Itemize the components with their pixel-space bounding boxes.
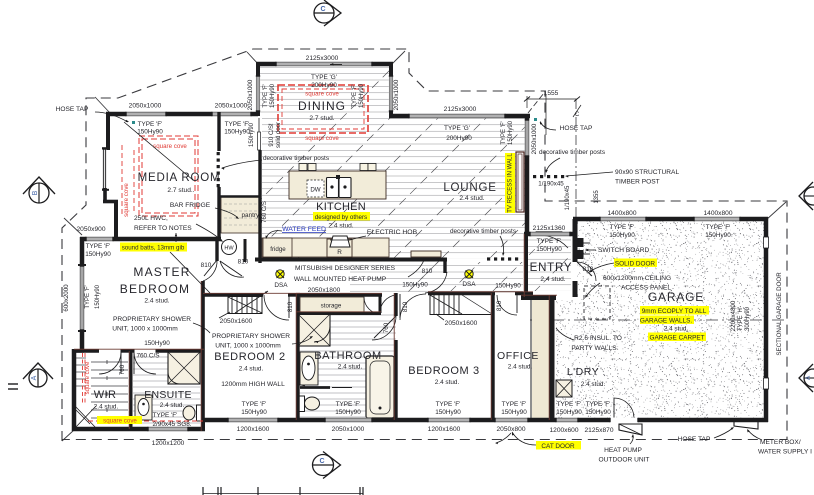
- svg-text:90x90 STRUCTURAL: 90x90 STRUCTURAL: [615, 169, 679, 176]
- svg-text:BEDROOM 3: BEDROOM 3: [408, 365, 479, 377]
- svg-text:A: A: [805, 375, 812, 380]
- svg-text:DW: DW: [310, 187, 320, 194]
- svg-text:TV RECESS IN WALL: TV RECESS IN WALL: [508, 153, 514, 213]
- svg-text:HOSE TAP: HOSE TAP: [560, 125, 593, 132]
- svg-text:150Hy90: 150Hy90: [335, 409, 361, 416]
- svg-text:PROPRIETARY SHOWER: PROPRIETARY SHOWER: [113, 316, 191, 323]
- svg-text:600x1200mm CEILING: 600x1200mm CEILING: [603, 275, 671, 282]
- svg-text:2050x1000: 2050x1000: [332, 426, 365, 433]
- svg-text:150Hy90: 150Hy90: [85, 251, 111, 258]
- svg-text:2050x1000: 2050x1000: [215, 103, 248, 110]
- svg-text:TYPE 'F': TYPE 'F': [153, 412, 178, 419]
- svg-text:2.4 stud.: 2.4 stud.: [540, 276, 565, 283]
- svg-text:decorative timber posts: decorative timber posts: [539, 149, 605, 156]
- svg-text:150Hy90: 150Hy90: [95, 284, 101, 309]
- svg-text:2.4 stud.: 2.4 stud.: [581, 381, 606, 388]
- svg-text:2050x1000: 2050x1000: [129, 103, 162, 110]
- svg-text:TYPE 'F': TYPE 'F': [501, 121, 507, 144]
- svg-text:designed by others: designed by others: [315, 214, 367, 221]
- svg-text:760: 760: [383, 322, 390, 333]
- svg-text:TYPE 'F': TYPE 'F': [586, 401, 611, 408]
- svg-text:810: 810: [287, 301, 294, 312]
- svg-text:TYPE 'F': TYPE 'F': [610, 224, 635, 231]
- svg-text:TYPE 'F': TYPE 'F': [225, 121, 250, 128]
- svg-text:2.4 stud.: 2.4 stud.: [435, 379, 460, 386]
- svg-text:150Hy90: 150Hy90: [705, 232, 731, 239]
- svg-text:PROPRIETARY SHOWER: PROPRIETARY SHOWER: [212, 333, 290, 340]
- svg-text:TYPE 'F': TYPE 'F': [336, 401, 361, 408]
- svg-text:A: A: [31, 375, 38, 380]
- svg-text:1400x800: 1400x800: [608, 210, 637, 217]
- svg-text:1355: 1355: [594, 190, 600, 204]
- svg-text:TYPE 'G': TYPE 'G': [444, 125, 470, 132]
- svg-text:TYPE 'H': TYPE 'H': [738, 307, 744, 331]
- svg-text:150Hy90: 150Hy90: [585, 409, 611, 416]
- svg-text:2050x1000: 2050x1000: [531, 123, 538, 154]
- svg-text:810: 810: [422, 268, 433, 275]
- svg-text:2.4 stud.: 2.4 stud.: [459, 195, 484, 202]
- svg-text:250L HWC,: 250L HWC,: [134, 215, 168, 222]
- svg-text:B: B: [32, 190, 39, 195]
- svg-text:WATER SUPPLY I: WATER SUPPLY I: [758, 449, 812, 456]
- svg-text:2125x1360: 2125x1360: [533, 225, 566, 232]
- svg-text:TYPE 'F': TYPE 'F': [352, 84, 358, 107]
- svg-text:810: 810: [402, 301, 409, 312]
- svg-text:OFFICE: OFFICE: [497, 350, 539, 362]
- svg-text:150Hy90: 150Hy90: [495, 283, 521, 290]
- svg-text:1/190x45: 1/190x45: [565, 185, 571, 210]
- svg-text:TYPE 'F': TYPE 'F': [86, 243, 111, 250]
- svg-text:150Hy90: 150Hy90: [536, 246, 562, 253]
- svg-text:solid door: solid door: [276, 122, 282, 148]
- svg-text:CAT DOOR: CAT DOOR: [541, 443, 575, 450]
- svg-text:UNIT, 1000 x 1000mm: UNIT, 1000 x 1000mm: [112, 326, 178, 333]
- svg-text:2.4 stud.: 2.4 stud.: [94, 404, 119, 411]
- svg-text:KITCHEN: KITCHEN: [316, 201, 366, 213]
- svg-text:2050x1800: 2050x1800: [308, 287, 341, 294]
- svg-text:square cove: square cove: [85, 361, 91, 394]
- svg-text:2050x1600: 2050x1600: [220, 318, 253, 325]
- svg-text:GARAGE CARPET: GARAGE CARPET: [649, 334, 704, 341]
- svg-text:2125x3000: 2125x3000: [306, 55, 339, 62]
- svg-text:1200mm HIGH WALL: 1200mm HIGH WALL: [221, 381, 285, 388]
- svg-text:SECTIONAL GARAGE DOOR: SECTIONAL GARAGE DOOR: [776, 272, 783, 356]
- svg-text:2.4 stud.: 2.4 stud.: [144, 298, 169, 305]
- svg-text:1200x600: 1200x600: [550, 427, 579, 434]
- svg-text:TYPE 'G': TYPE 'G': [311, 74, 337, 81]
- svg-text:R: R: [337, 249, 342, 256]
- svg-text:DSA: DSA: [462, 281, 476, 288]
- svg-text:C: C: [320, 6, 325, 13]
- svg-text:decorative timber posts: decorative timber posts: [450, 228, 516, 235]
- svg-text:WATER FEED: WATER FEED: [282, 226, 326, 233]
- svg-text:square cove: square cove: [305, 91, 339, 98]
- svg-text:910 C/S!: 910 C/S!: [269, 123, 275, 147]
- svg-text:TYPE 'F': TYPE 'F': [242, 401, 267, 408]
- svg-text:2125x870: 2125x870: [585, 427, 614, 434]
- svg-text:LOUNGE: LOUNGE: [443, 182, 496, 194]
- svg-text:L'DRY: L'DRY: [567, 366, 599, 378]
- svg-text:2.7 stud.: 2.7 stud.: [309, 115, 334, 122]
- svg-text:2.4 stud.: 2.4 stud.: [239, 366, 264, 373]
- svg-text:PARTY WALLS: PARTY WALLS: [571, 345, 617, 352]
- svg-text:1200x1600: 1200x1600: [237, 426, 270, 433]
- svg-text:1/190x45: 1/190x45: [538, 181, 564, 188]
- svg-text:SWITCH BOARD: SWITCH BOARD: [598, 247, 650, 254]
- svg-text:HW: HW: [224, 246, 234, 252]
- svg-text:150Hy90: 150Hy90: [144, 340, 170, 347]
- svg-text:2050x1000: 2050x1000: [393, 79, 400, 110]
- svg-text:2200x4800: 2200x4800: [730, 300, 737, 331]
- svg-text:GARAGE WALLS.: GARAGE WALLS.: [640, 317, 693, 324]
- svg-text:C: C: [319, 458, 324, 465]
- svg-text:2125x3000: 2125x3000: [444, 106, 477, 113]
- svg-text:square cove: square cove: [153, 143, 187, 150]
- svg-text:fridge: fridge: [270, 246, 286, 253]
- svg-text:150Hy90: 150Hy90: [508, 120, 514, 145]
- svg-text:HOSE TAP: HOSE TAP: [678, 436, 711, 443]
- svg-text:150Hy90: 150Hy90: [359, 83, 365, 108]
- svg-text:MEDIA ROOM: MEDIA ROOM: [138, 172, 221, 184]
- svg-text:1200x1200: 1200x1200: [152, 440, 185, 447]
- svg-text:2.4 stud.: 2.4 stud.: [338, 364, 363, 371]
- svg-text:OUTDOOR UNIT: OUTDOOR UNIT: [599, 457, 650, 464]
- svg-text:ENTRY: ENTRY: [530, 262, 573, 274]
- svg-text:R2.6 INSUL. TO: R2.6 INSUL. TO: [574, 335, 622, 342]
- svg-text:150Hy90: 150Hy90: [137, 129, 163, 136]
- svg-text:760: 760: [119, 364, 126, 375]
- svg-text:BEDROOM 2: BEDROOM 2: [214, 351, 285, 363]
- svg-text:150Hy90: 150Hy90: [609, 232, 635, 239]
- svg-text:760 C/S: 760 C/S: [262, 201, 268, 223]
- svg-text:ENSUITE: ENSUITE: [144, 389, 192, 401]
- svg-text:300Hy90: 300Hy90: [745, 306, 751, 331]
- svg-text:REFER TO NOTES: REFER TO NOTES: [134, 225, 192, 232]
- svg-text:TYPE 'F': TYPE 'F': [537, 238, 562, 245]
- svg-text:200Hy90: 200Hy90: [446, 135, 472, 142]
- svg-text:decorative timber posts: decorative timber posts: [263, 155, 329, 162]
- svg-text:TYPE 'F': TYPE 'F': [706, 224, 731, 231]
- svg-text:150Hy90: 150Hy90: [435, 409, 461, 416]
- svg-text:TYPE 'F': TYPE 'F': [502, 401, 527, 408]
- svg-text:810: 810: [238, 259, 249, 266]
- svg-text:MITSUBISHI DESIGNER SERIES: MITSUBISHI DESIGNER SERIES: [295, 265, 396, 272]
- svg-text:810: 810: [496, 300, 503, 311]
- svg-text:storage: storage: [321, 303, 342, 310]
- svg-text:600x2000: 600x2000: [63, 284, 70, 312]
- svg-text:TYPE 'F': TYPE 'F': [85, 285, 91, 308]
- svg-text:TYPE 'F': TYPE 'F': [557, 401, 582, 408]
- svg-text:BAR FRIDGE: BAR FRIDGE: [170, 202, 211, 209]
- svg-text:HOSE TAP: HOSE TAP: [56, 106, 89, 113]
- svg-text:METER BOX/: METER BOX/: [760, 439, 801, 446]
- svg-text:2.7 stud..: 2.7 stud..: [167, 187, 194, 194]
- svg-text:TIMBER POST: TIMBER POST: [615, 179, 660, 186]
- svg-text:150Hy90: 150Hy90: [241, 409, 267, 416]
- svg-text:2050x1000: 2050x1000: [247, 79, 254, 110]
- svg-text:150Hy90: 150Hy90: [402, 282, 428, 289]
- svg-text:150Hy90: 150Hy90: [556, 409, 582, 416]
- svg-text:TYPE 'F': TYPE 'F': [138, 121, 163, 128]
- svg-text:810: 810: [201, 262, 212, 269]
- svg-text:BATHROOM: BATHROOM: [314, 350, 382, 362]
- svg-text:pantry.: pantry.: [241, 212, 260, 219]
- svg-text:TYPE 'F': TYPE 'F': [436, 401, 461, 408]
- svg-text:2050x800: 2050x800: [497, 426, 526, 433]
- svg-text:2050x1600: 2050x1600: [445, 320, 478, 327]
- svg-text:150Hy90: 150Hy90: [249, 122, 255, 147]
- svg-text:9mm ECOPLY TO ALL: 9mm ECOPLY TO ALL: [642, 308, 707, 315]
- svg-text:1200x1600: 1200x1600: [428, 426, 461, 433]
- svg-text:150Hy90: 150Hy90: [270, 83, 276, 108]
- svg-text:810: 810: [583, 266, 594, 273]
- svg-text:BEDROOM: BEDROOM: [120, 282, 190, 296]
- svg-text:square cove: square cove: [123, 183, 130, 217]
- svg-text:200Hy90: 200Hy90: [311, 82, 337, 89]
- svg-text:WIR: WIR: [94, 389, 117, 401]
- svg-text:ACCESS PANEL: ACCESS PANEL: [621, 285, 671, 292]
- svg-text:2.4 stud.: 2.4 stud.: [664, 326, 689, 333]
- svg-text:2.4 stud.: 2.4 stud.: [160, 402, 185, 409]
- svg-text:760 C/S: 760 C/S: [136, 353, 159, 360]
- svg-text:UNIT, 1000 x 1000mm: UNIT, 1000 x 1000mm: [215, 343, 281, 350]
- svg-text:square cove: square cove: [305, 135, 339, 142]
- svg-text:TYPE 'F': TYPE 'F': [263, 84, 269, 107]
- svg-text:square cove: square cove: [103, 418, 137, 425]
- svg-text:150Hy90: 150Hy90: [501, 409, 527, 416]
- svg-text:1400x800: 1400x800: [704, 210, 733, 217]
- svg-text:MASTER: MASTER: [133, 265, 190, 279]
- svg-text:2050x900: 2050x900: [77, 226, 106, 233]
- svg-text:2.4 stud.: 2.4 stud.: [508, 364, 533, 371]
- svg-text:DINING: DINING: [298, 99, 346, 113]
- svg-text:2/90x45 SG8.: 2/90x45 SG8.: [152, 421, 191, 428]
- svg-text:WALL MOUNTED HEAT PUMP: WALL MOUNTED HEAT PUMP: [294, 276, 387, 283]
- svg-text:SOLID DOOR: SOLID DOOR: [615, 260, 656, 267]
- svg-text:HEAT PUMP: HEAT PUMP: [604, 447, 642, 454]
- svg-text:sound batts, 13mm gib: sound batts, 13mm gib: [122, 245, 185, 252]
- svg-text:150Hy90: 150Hy90: [224, 129, 250, 136]
- svg-text:DSA: DSA: [274, 282, 288, 289]
- svg-text:ELECTRIC HOB: ELECTRIC HOB: [367, 229, 418, 236]
- svg-text:2.4 stud.: 2.4 stud.: [328, 223, 353, 230]
- svg-text:GARAGE: GARAGE: [648, 290, 704, 304]
